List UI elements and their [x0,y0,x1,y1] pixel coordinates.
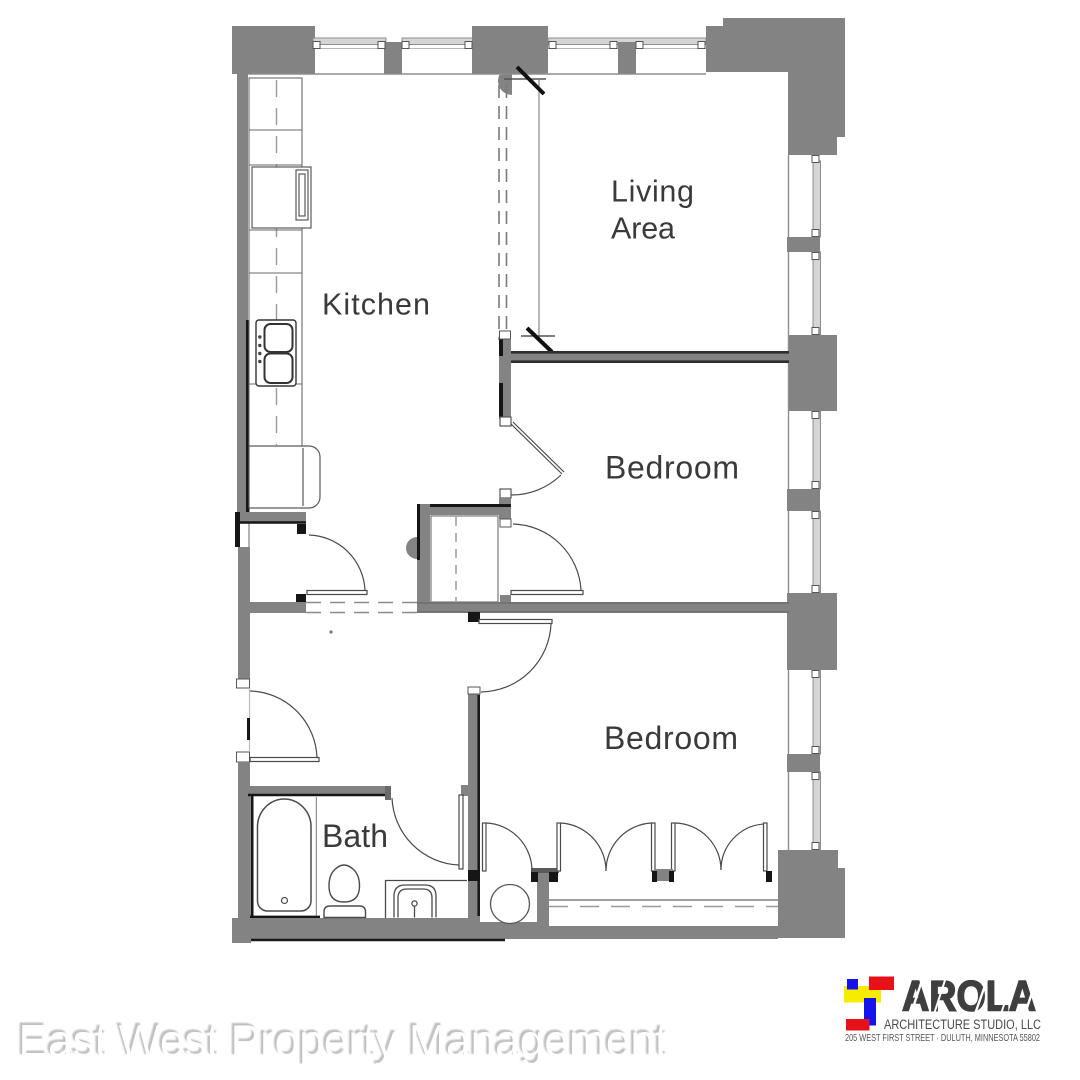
svg-text:205 WEST FIRST STREET · DULUTH: 205 WEST FIRST STREET · DULUTH, MINNESOT… [845,1033,1040,1044]
svg-text:Area: Area [611,212,675,246]
svg-text:Bath: Bath [322,818,388,854]
svg-text:East West Property Management: East West Property Management [19,1016,669,1067]
svg-text:ARCHITECTURE STUDIO, LLC: ARCHITECTURE STUDIO, LLC [884,1017,1041,1033]
svg-text:Bedroom: Bedroom [604,720,738,756]
svg-text:Living: Living [611,175,694,209]
svg-text:Bedroom: Bedroom [605,450,739,486]
